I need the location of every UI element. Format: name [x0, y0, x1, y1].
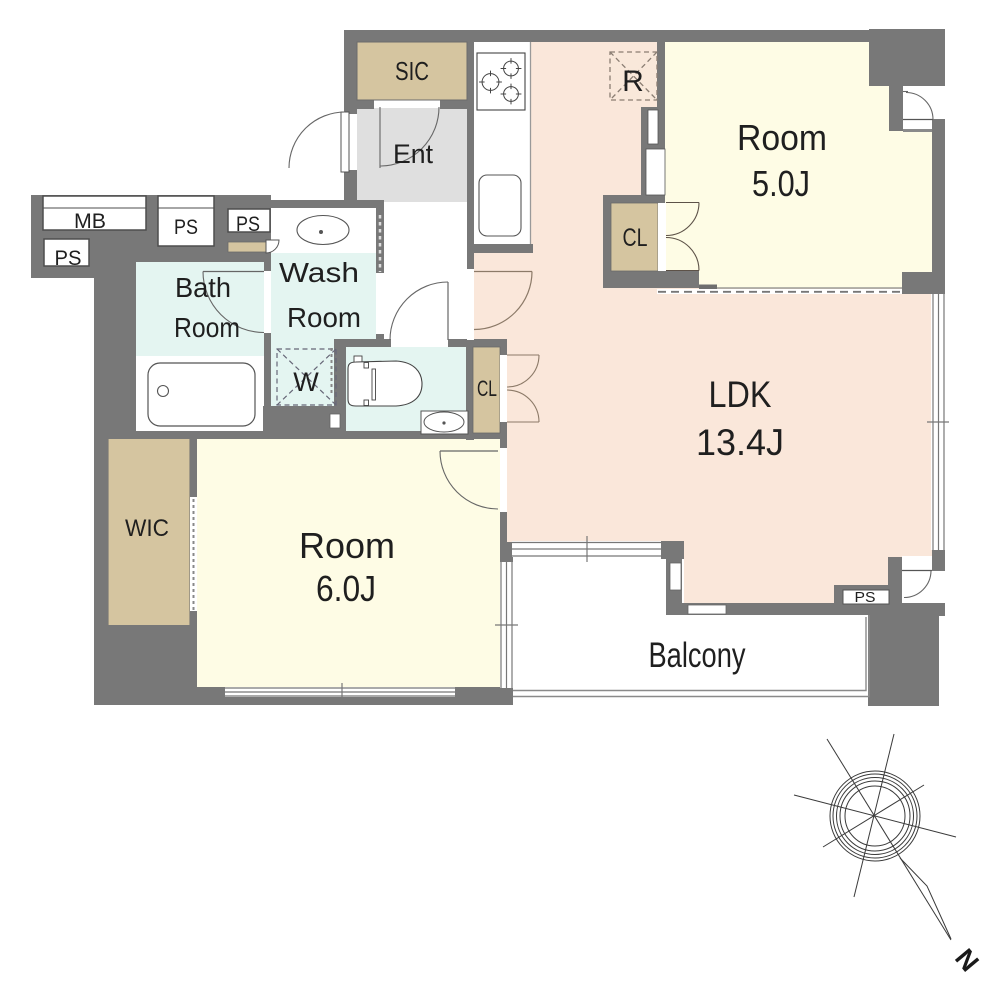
svg-text:PS: PS: [855, 590, 876, 606]
svg-text:Room: Room: [287, 302, 361, 333]
svg-text:MB: MB: [74, 209, 106, 233]
svg-text:Balcony: Balcony: [649, 636, 746, 675]
svg-text:Wash: Wash: [279, 257, 359, 288]
svg-text:Room: Room: [174, 312, 240, 343]
svg-text:SIC: SIC: [395, 56, 429, 86]
svg-text:Bath: Bath: [175, 272, 231, 303]
svg-text:CL: CL: [623, 224, 648, 252]
svg-text:6.0J: 6.0J: [316, 568, 376, 609]
svg-text:Room: Room: [299, 525, 395, 566]
svg-text:Room: Room: [737, 117, 827, 158]
svg-text:W: W: [293, 367, 319, 397]
svg-text:PS: PS: [55, 246, 82, 270]
svg-text:PS: PS: [174, 215, 198, 239]
svg-text:CL: CL: [477, 376, 497, 401]
svg-text:N: N: [949, 943, 985, 977]
svg-text:WIC: WIC: [125, 515, 169, 542]
svg-text:LDK: LDK: [709, 374, 772, 415]
svg-text:PS: PS: [236, 212, 260, 236]
svg-text:5.0J: 5.0J: [752, 163, 810, 204]
svg-text:R: R: [622, 65, 644, 98]
svg-text:Ent: Ent: [393, 139, 433, 169]
svg-text:13.4J: 13.4J: [696, 422, 784, 463]
